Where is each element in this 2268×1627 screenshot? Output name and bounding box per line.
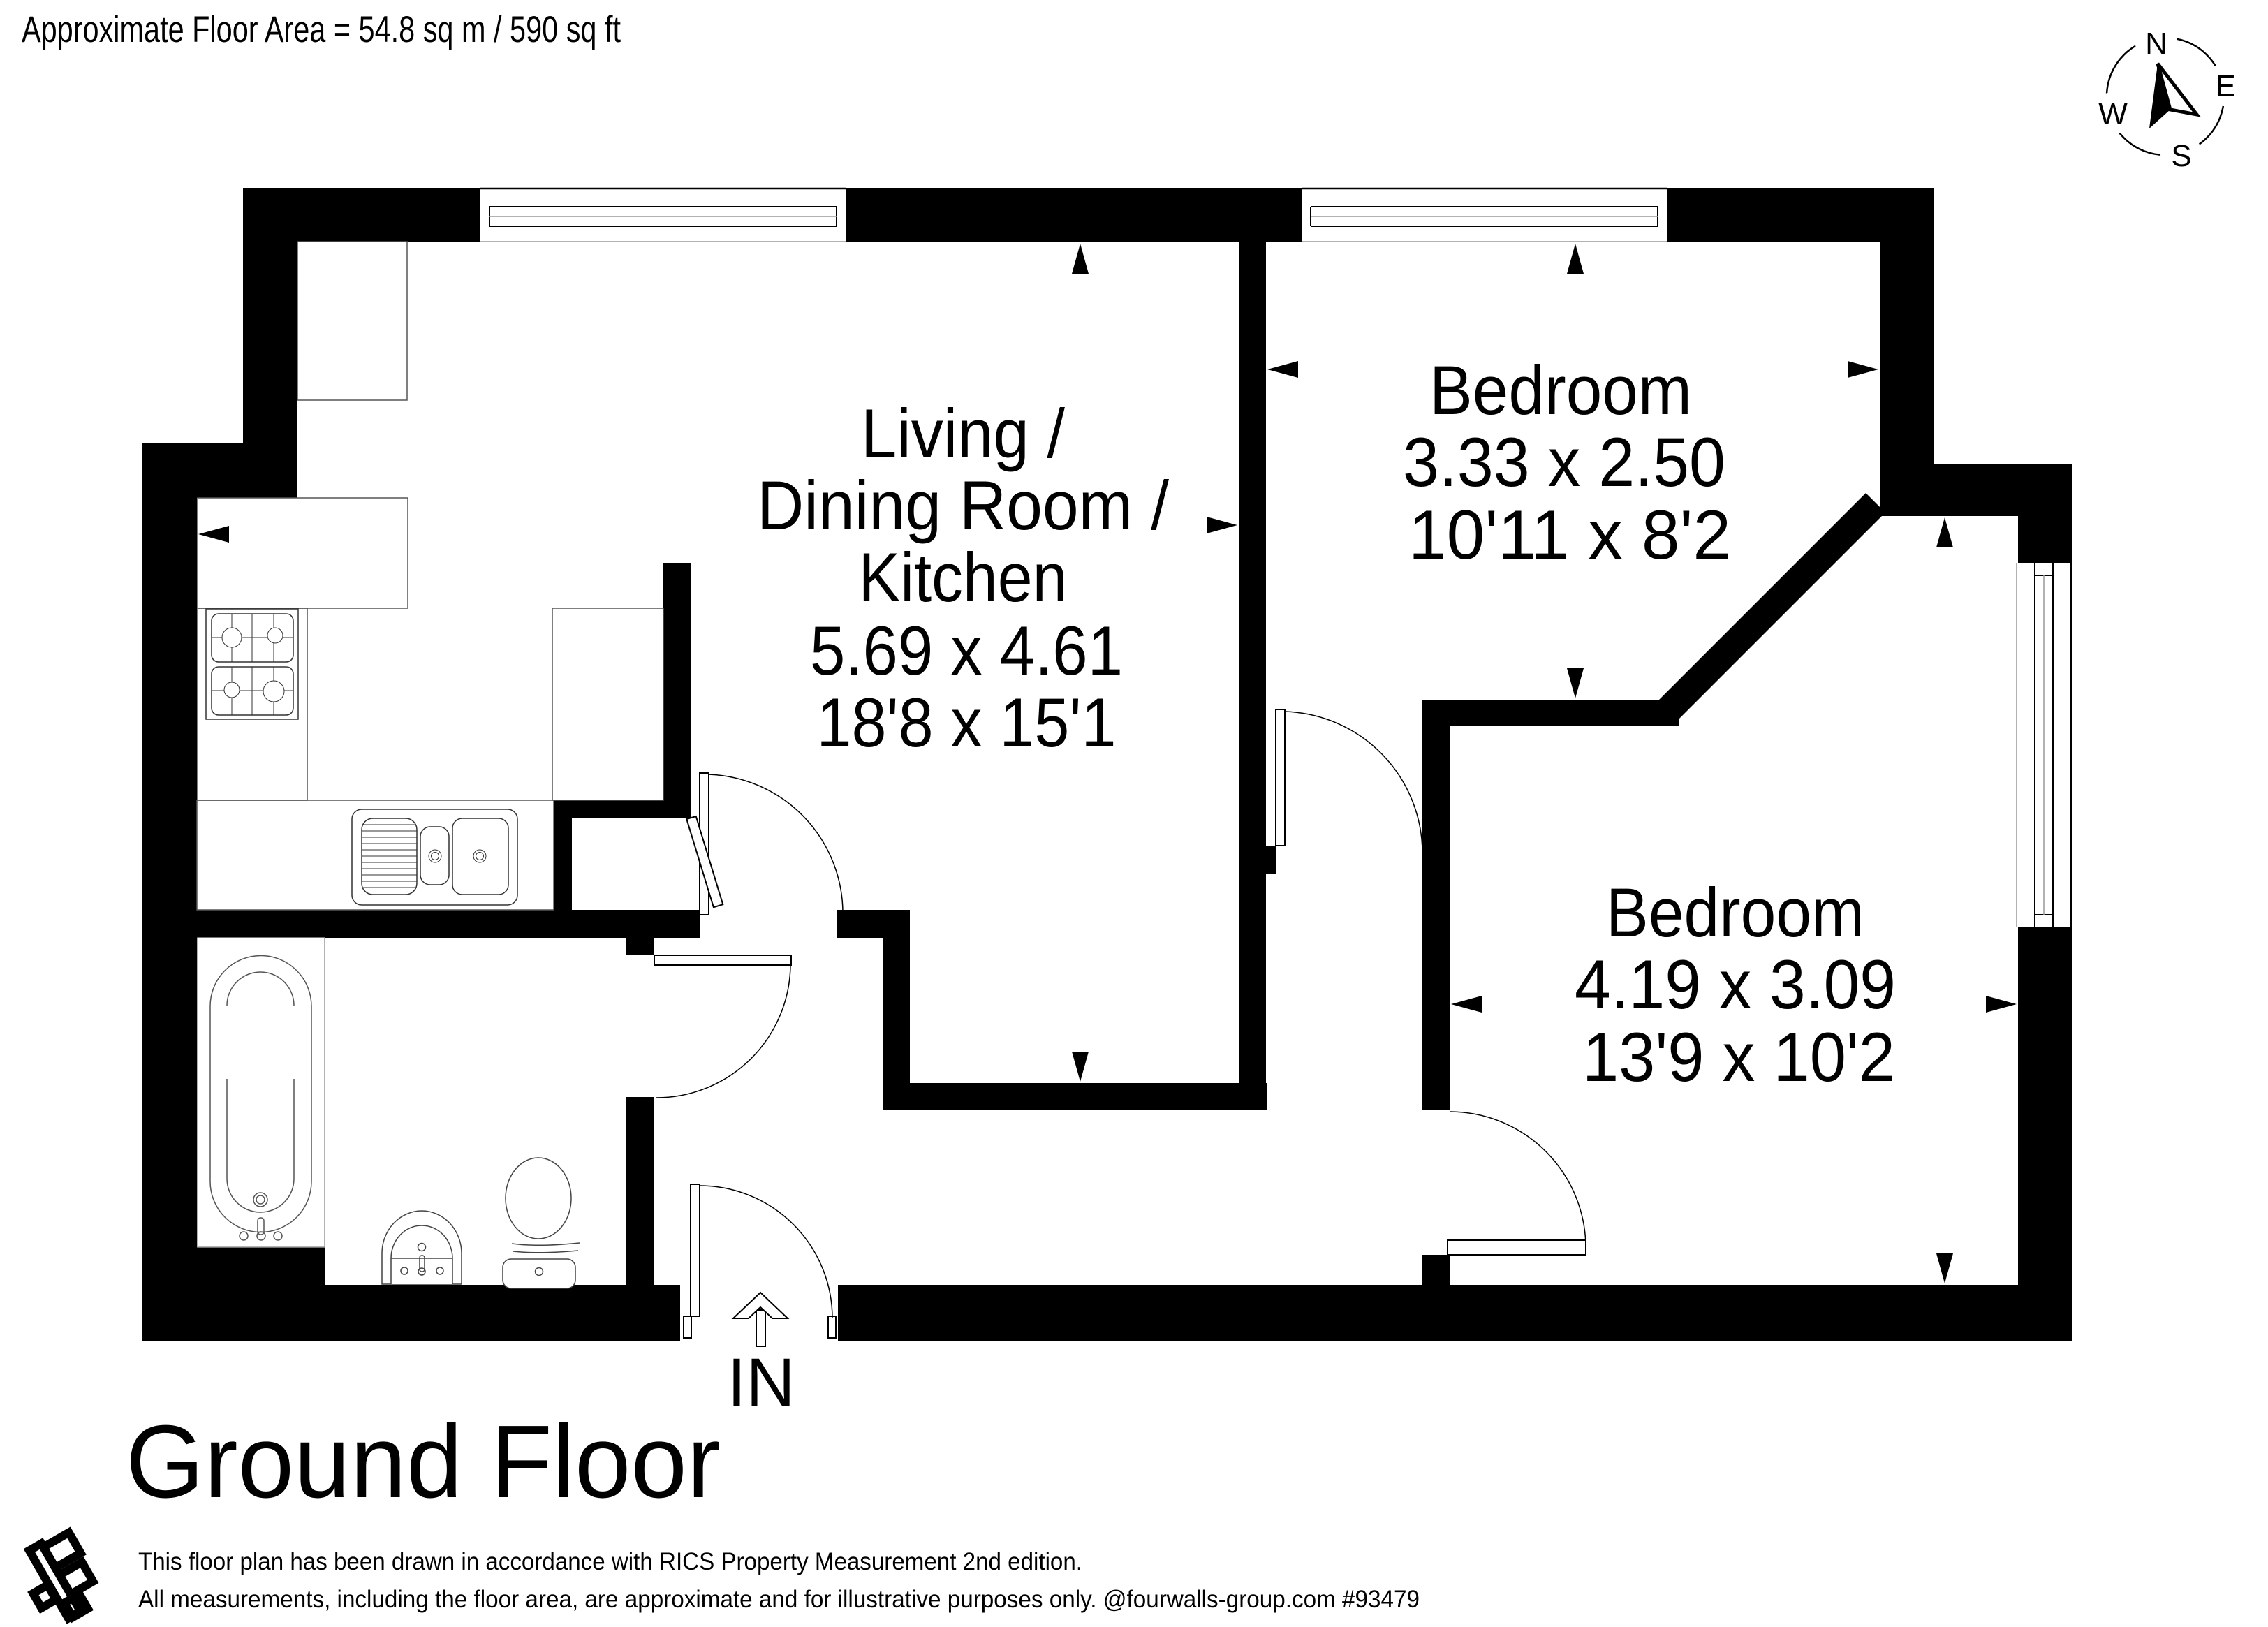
svg-text:Dining Room /: Dining Room /	[757, 466, 1169, 544]
svg-text:18'8 x 15'1: 18'8 x 15'1	[817, 684, 1117, 761]
svg-text:W: W	[2098, 97, 2128, 131]
svg-text:All measurements, including th: All measurements, including the floor ar…	[138, 1586, 1420, 1613]
svg-text:Ground Floor: Ground Floor	[126, 1404, 721, 1519]
svg-text:13'9 x 10'2: 13'9 x 10'2	[1582, 1018, 1895, 1096]
svg-text:This floor plan has been drawn: This floor plan has been drawn in accord…	[138, 1548, 1082, 1575]
svg-text:5.69 x 4.61: 5.69 x 4.61	[810, 612, 1123, 689]
svg-text:4.19 x 3.09: 4.19 x 3.09	[1575, 945, 1896, 1023]
svg-text:10'11 x 8'2: 10'11 x 8'2	[1408, 496, 1731, 573]
svg-text:Bedroom: Bedroom	[1606, 874, 1864, 951]
svg-text:Living /: Living /	[861, 395, 1065, 472]
svg-text:IN: IN	[728, 1344, 795, 1420]
svg-text:Bedroom: Bedroom	[1429, 351, 1692, 429]
svg-text:E: E	[2215, 69, 2235, 103]
svg-text:Approximate Floor Area = 54.8: Approximate Floor Area = 54.8 sq m / 590…	[22, 9, 621, 50]
svg-text:3.33 x 2.50: 3.33 x 2.50	[1403, 423, 1725, 501]
svg-text:Kitchen: Kitchen	[859, 538, 1068, 616]
svg-text:N: N	[2145, 27, 2167, 61]
svg-text:S: S	[2171, 139, 2191, 173]
